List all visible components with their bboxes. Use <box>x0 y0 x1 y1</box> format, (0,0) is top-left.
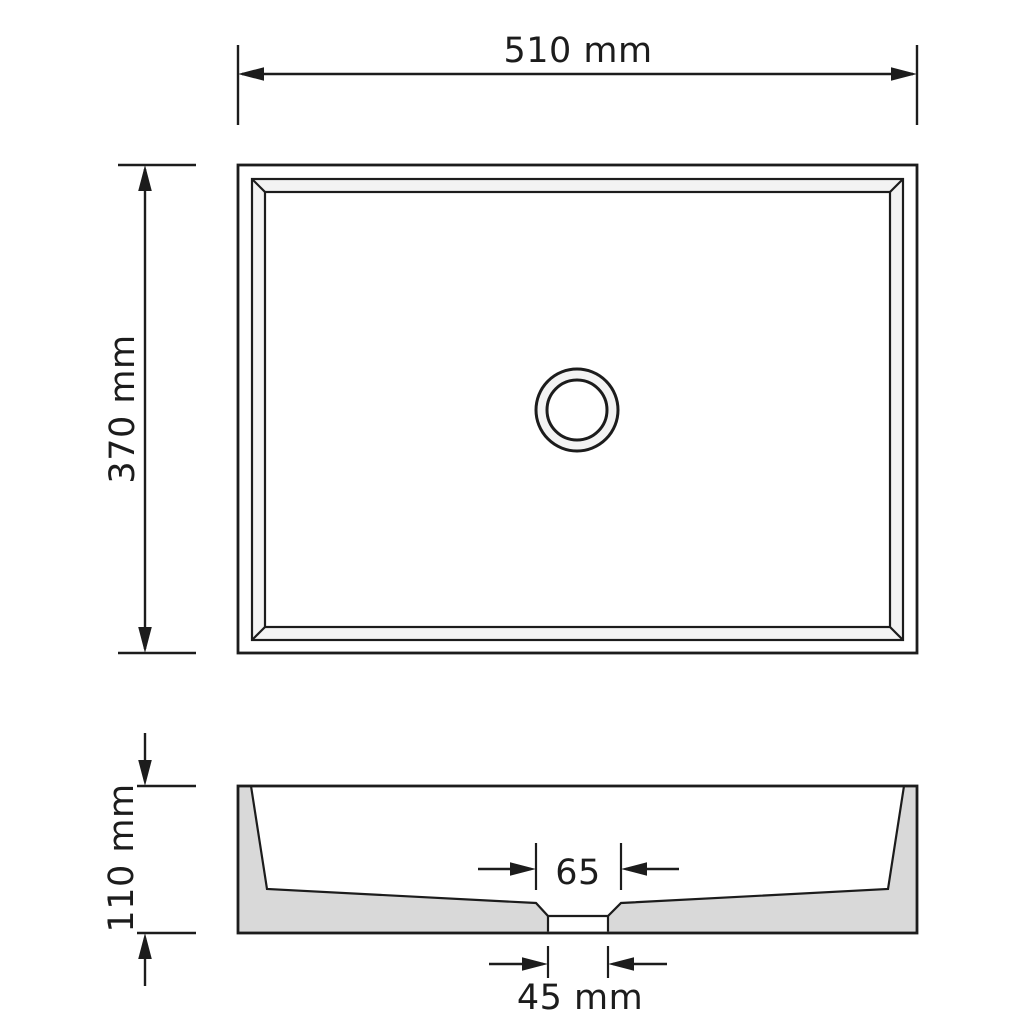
arrowhead-right <box>522 957 548 971</box>
arrowhead-right <box>510 862 536 876</box>
drawing-root: 510 mm 370 mm 110 mm 65 45 mm <box>102 31 917 1018</box>
arrowhead-left <box>238 67 264 81</box>
label-overall-width: 510 mm <box>503 31 652 71</box>
arrowhead-down <box>138 760 152 786</box>
drain-ring-inner <box>547 380 607 440</box>
dimension-overall-height <box>137 733 196 986</box>
arrowhead-bottom <box>138 627 152 653</box>
label-drain-recess: 65 <box>555 853 601 893</box>
arrowheads <box>522 957 634 971</box>
arrowhead-right <box>891 67 917 81</box>
arrowhead-left <box>608 957 634 971</box>
arrowhead-left <box>621 862 647 876</box>
dimension-drain-hole <box>489 946 667 978</box>
label-overall-depth: 370 mm <box>103 334 143 483</box>
top-view <box>238 165 917 653</box>
label-overall-height: 110 mm <box>102 783 142 932</box>
technical-drawing-page: 510 mm 370 mm 110 mm 65 45 mm <box>0 0 1024 1024</box>
label-drain-hole: 45 mm <box>517 978 643 1018</box>
arrowhead-up <box>138 933 152 959</box>
arrowhead-top <box>138 165 152 191</box>
basin-technical-drawing: 510 mm 370 mm 110 mm 65 45 mm <box>0 0 1024 1024</box>
